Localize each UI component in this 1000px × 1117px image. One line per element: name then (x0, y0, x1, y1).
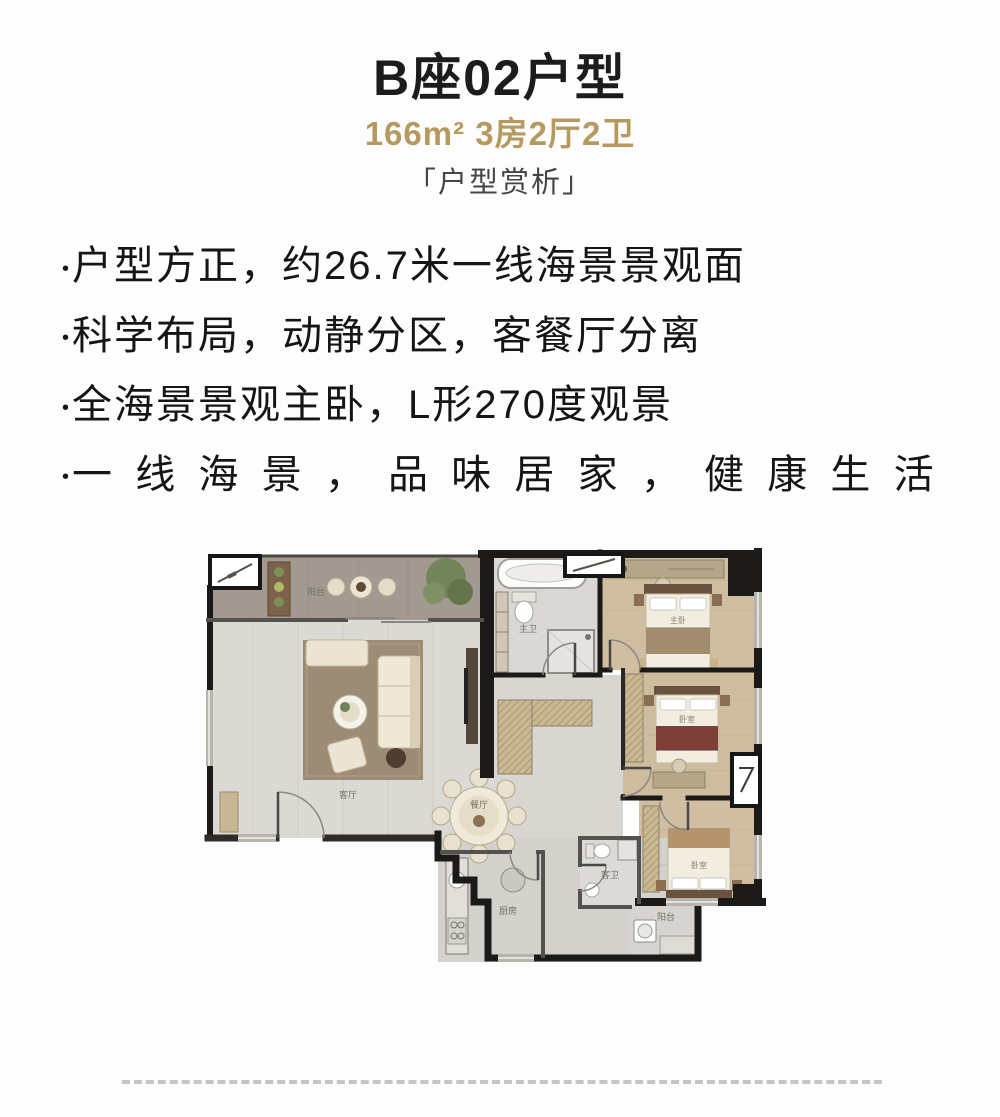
floor-plan-svg: 阳台 客厅 餐厅 主卫 主卧 卧室 卧室 厨房 客卫 阳台 (198, 540, 798, 992)
ac-platform-icon (210, 556, 260, 588)
room-label-bedroom3: 卧室 (691, 860, 707, 870)
page-title: B座02户型 (0, 38, 1000, 110)
room-label-bedroom2: 卧室 (679, 714, 695, 724)
unit-specs: 166m² 3房2厅2卫 (0, 107, 1000, 155)
section-label: 「户型赏析」 (0, 159, 1000, 201)
dining-area (432, 769, 526, 863)
dashed-divider (122, 1080, 882, 1084)
page: B座02户型 166m² 3房2厅2卫 「户型赏析」 •户型方正，约26.7米一… (0, 0, 1000, 1117)
room-label-service-balcony: 阳台 (657, 911, 675, 922)
feature-bullet: •户型方正，约26.7米一线海景景观面 (62, 233, 972, 303)
room-label-kitchen: 厨房 (499, 905, 517, 916)
room-label-balcony: 阳台 (307, 586, 325, 597)
feature-bullet-list: •户型方正，约26.7米一线海景景观面 •科学布局，动静分区，客餐厅分离 •全海… (62, 233, 972, 511)
ac-platform-icon (565, 554, 623, 576)
floor-plan: 阳台 客厅 餐厅 主卫 主卧 卧室 卧室 厨房 客卫 阳台 (198, 540, 798, 992)
feature-bullet: •全海景景观主卧，L形270度观景 (62, 372, 972, 442)
room-label-guest-bath: 客卫 (601, 869, 619, 880)
bullet-dot-icon: • (62, 466, 69, 488)
feature-bullet: •科学布局，动静分区，客餐厅分离 (62, 303, 972, 373)
room-label-master-bath: 主卫 (519, 623, 537, 634)
room-label-master-bedroom: 主卧 (670, 615, 686, 625)
feature-bullet: •一线海景，品味居家，健康生活 (62, 442, 972, 512)
bullet-dot-icon: • (62, 258, 69, 280)
ac-platform-icon (732, 754, 760, 806)
room-label-living: 客厅 (339, 789, 357, 800)
bullet-dot-icon: • (62, 397, 69, 419)
room-label-dining: 餐厅 (470, 799, 488, 810)
bullet-dot-icon: • (62, 327, 69, 349)
